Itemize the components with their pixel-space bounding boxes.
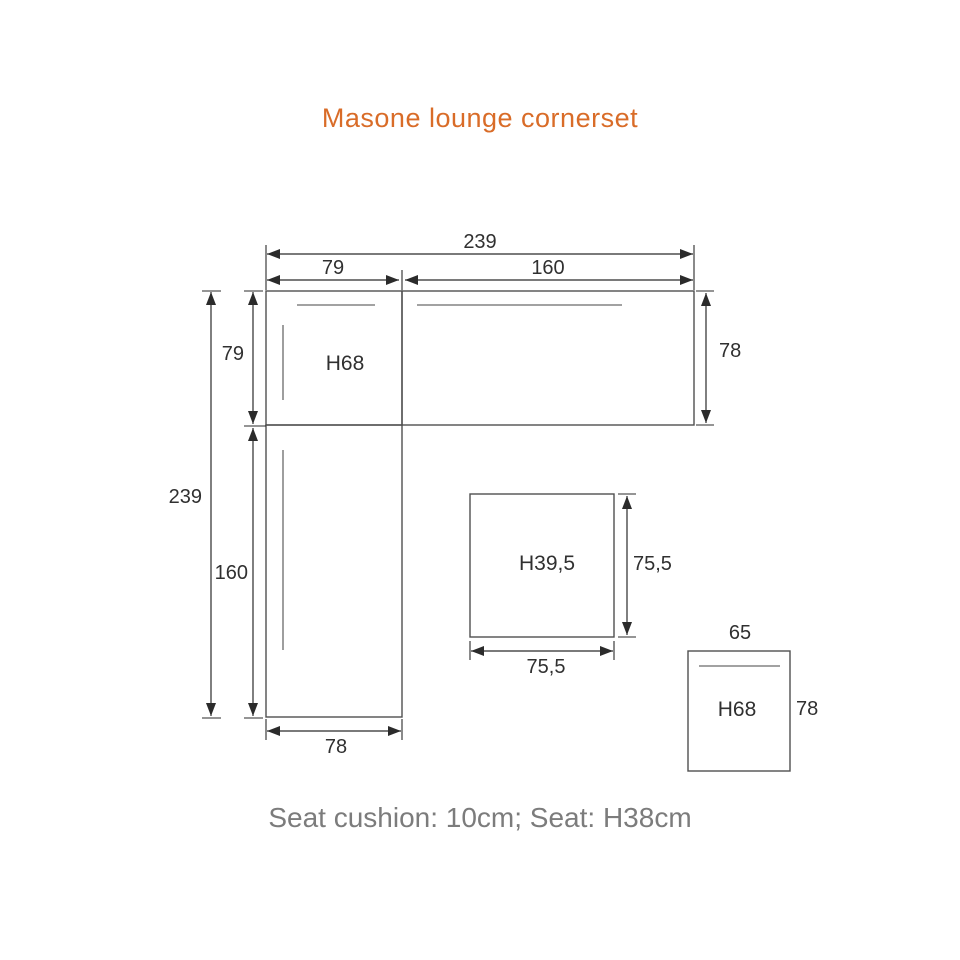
seat-caption: Seat cushion: 10cm; Seat: H38cm [0, 802, 960, 834]
dim-label-table-width: 75,5 [527, 656, 566, 678]
bottom-section-outline [266, 425, 402, 717]
table-height-label: H39,5 [519, 552, 575, 575]
dim-label-bottom-width: 78 [325, 736, 347, 758]
dim-label-right-depth: 78 [719, 340, 741, 362]
right-section-outline [402, 291, 694, 425]
dim-label-stool-width: 65 [729, 622, 751, 644]
dim-label-top-left: 79 [322, 257, 344, 279]
dim-label-table-depth: 75,5 [633, 553, 672, 575]
extension-ticks [202, 245, 714, 740]
dim-label-left-upper: 79 [222, 343, 244, 365]
dim-label-top-right: 160 [531, 257, 564, 279]
corner-height-label: H68 [326, 352, 365, 375]
dim-label-stool-depth: 78 [796, 698, 818, 720]
dimension-lines [211, 254, 706, 731]
dim-label-left-total: 239 [169, 486, 202, 508]
dim-label-top-total: 239 [463, 231, 496, 253]
stool-height-label: H68 [718, 698, 757, 721]
dim-label-left-lower: 160 [215, 562, 248, 584]
